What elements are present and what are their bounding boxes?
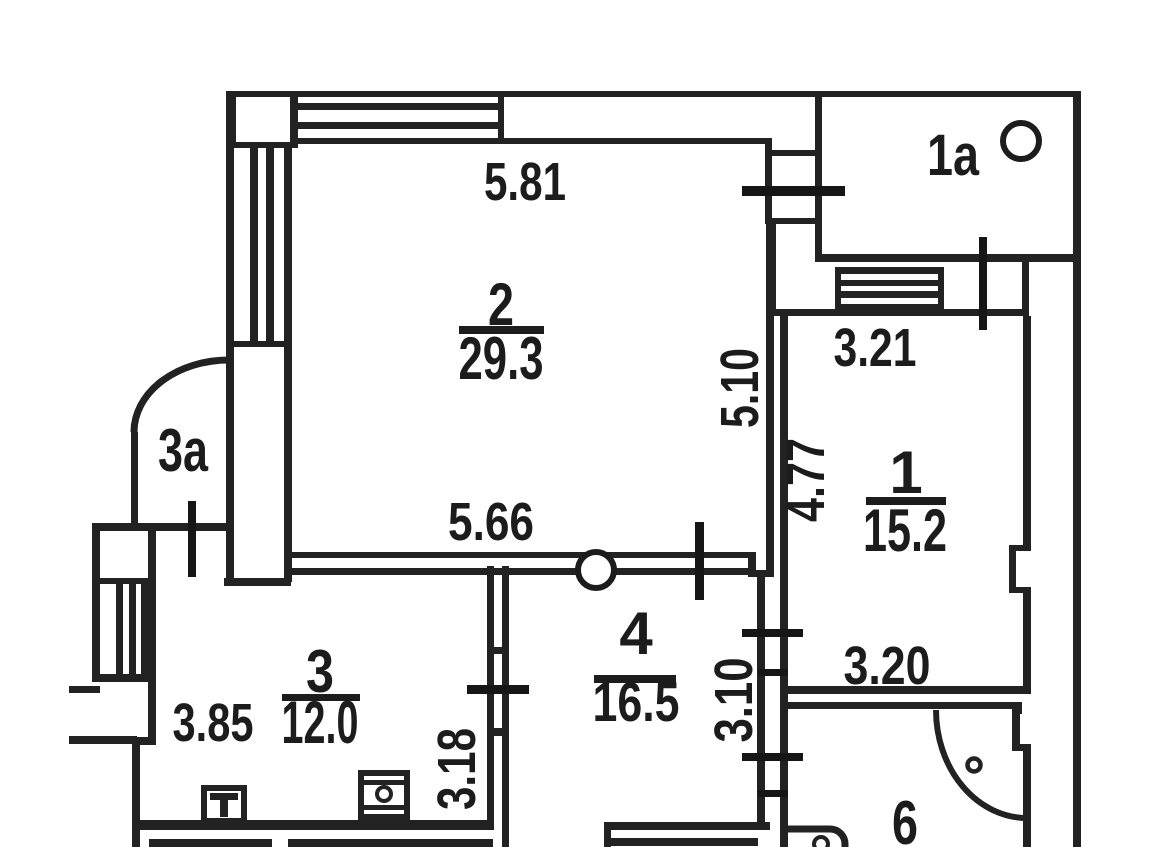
svg-text:12.0: 12.0 bbox=[282, 689, 359, 756]
svg-text:5.66: 5.66 bbox=[448, 492, 534, 552]
svg-text:3.18: 3.18 bbox=[427, 728, 487, 810]
svg-text:3.10: 3.10 bbox=[704, 658, 764, 743]
svg-text:3a: 3a bbox=[158, 417, 208, 484]
svg-text:1: 1 bbox=[889, 439, 922, 506]
svg-text:1a: 1a bbox=[927, 123, 980, 188]
svg-text:16.5: 16.5 bbox=[593, 670, 680, 733]
svg-text:4: 4 bbox=[619, 600, 653, 667]
svg-text:4.77: 4.77 bbox=[776, 438, 836, 522]
svg-text:3.21: 3.21 bbox=[834, 318, 917, 378]
svg-text:15.2: 15.2 bbox=[863, 497, 947, 564]
svg-text:5.81: 5.81 bbox=[484, 152, 566, 212]
svg-text:3.20: 3.20 bbox=[844, 636, 931, 696]
svg-text:5.10: 5.10 bbox=[710, 348, 770, 428]
svg-text:29.3: 29.3 bbox=[459, 325, 544, 392]
svg-text:3.85: 3.85 bbox=[173, 693, 254, 753]
svg-text:6: 6 bbox=[892, 789, 918, 847]
